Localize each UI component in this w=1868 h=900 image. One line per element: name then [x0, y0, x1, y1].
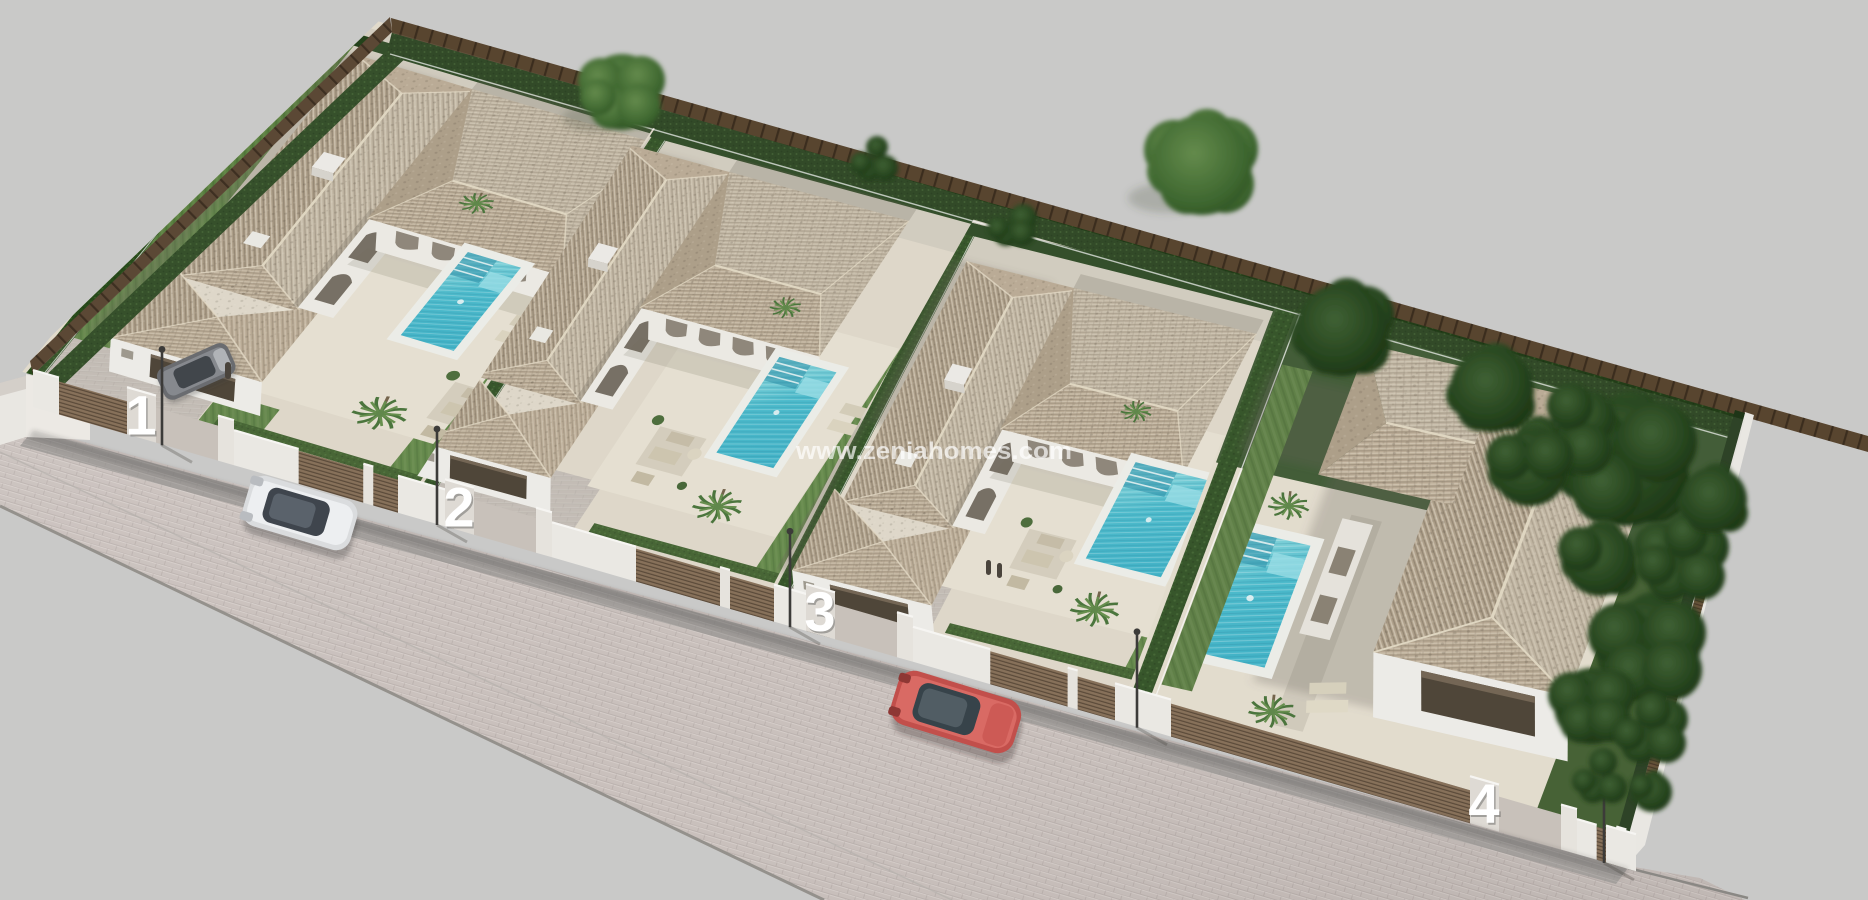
- svg-text:3: 3: [804, 580, 835, 643]
- svg-text:www.zeniahomes.com: www.zeniahomes.com: [795, 438, 1072, 465]
- svg-text:4: 4: [1468, 772, 1499, 835]
- svg-text:2: 2: [443, 475, 474, 538]
- svg-text:1: 1: [125, 383, 156, 446]
